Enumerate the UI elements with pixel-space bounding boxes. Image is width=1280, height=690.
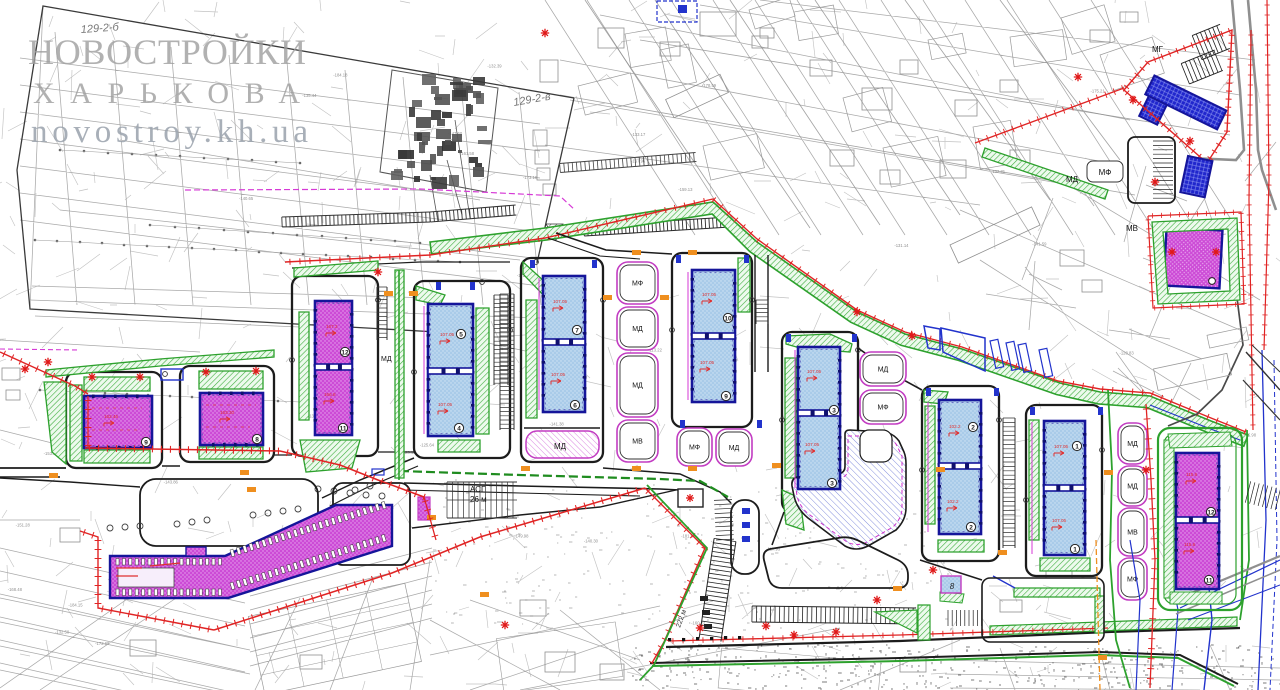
svg-text:162.45: 162.45: [104, 414, 118, 419]
svg-text:4: 4: [457, 425, 461, 432]
svg-text:МФ: МФ: [1099, 168, 1112, 177]
svg-text:-184.18: -184.18: [333, 73, 348, 78]
svg-text:107.05: 107.05: [805, 442, 819, 447]
svg-text:-135.44: -135.44: [302, 93, 317, 98]
svg-text:107.05: 107.05: [807, 369, 821, 374]
svg-text:107.05: 107.05: [702, 292, 716, 297]
svg-text:МД: МД: [729, 445, 740, 452]
svg-text:8: 8: [950, 582, 955, 591]
svg-text:МВ: МВ: [1126, 224, 1138, 233]
svg-text:2: 2: [971, 424, 975, 431]
svg-text:-175.21: -175.21: [1090, 88, 1105, 93]
svg-text:-125.64: -125.64: [420, 442, 435, 447]
svg-text:107.05: 107.05: [440, 332, 454, 337]
svg-text:166.8: 166.8: [324, 392, 336, 397]
svg-text:-132.39: -132.39: [487, 64, 502, 69]
svg-text:МГ: МГ: [1152, 45, 1164, 54]
svg-text:6: 6: [573, 402, 577, 409]
svg-text:107.05: 107.05: [551, 372, 565, 377]
svg-text:-141.38: -141.38: [550, 422, 565, 427]
svg-text:-184.15: -184.15: [68, 603, 83, 608]
svg-text:МВ: МВ: [1127, 530, 1138, 537]
svg-text:-149.98: -149.98: [514, 534, 529, 539]
svg-text:107.05: 107.05: [553, 299, 567, 304]
svg-text:-143.86: -143.86: [164, 479, 179, 484]
svg-text:26 м: 26 м: [470, 495, 487, 504]
svg-text:МД: МД: [632, 383, 643, 390]
svg-text:-132.50: -132.50: [55, 630, 70, 635]
svg-text:-172.69: -172.69: [95, 641, 110, 646]
svg-text:115.6: 115.6: [1186, 472, 1198, 477]
svg-text:7: 7: [575, 327, 579, 334]
svg-text:-159.13: -159.13: [678, 187, 693, 192]
svg-text:НОВОСТРОЙКИ: НОВОСТРОЙКИ: [28, 32, 306, 72]
svg-text:107.05: 107.05: [1052, 518, 1066, 523]
svg-text:11: 11: [1206, 577, 1213, 584]
svg-text:167.2: 167.2: [326, 324, 338, 329]
svg-text:МД: МД: [381, 356, 392, 363]
svg-text:1: 1: [1075, 443, 1079, 450]
svg-text:МФ: МФ: [877, 405, 888, 412]
svg-text:10: 10: [724, 315, 732, 322]
svg-text:102.2: 102.2: [947, 499, 959, 504]
svg-text:2: 2: [969, 524, 973, 531]
svg-text:3: 3: [832, 407, 836, 414]
svg-text:1: 1: [1073, 546, 1077, 553]
svg-text:МД: МД: [1066, 175, 1079, 184]
svg-text:12: 12: [1207, 509, 1215, 516]
svg-text:-133.17: -133.17: [631, 132, 646, 137]
svg-text:-140.30: -140.30: [584, 539, 599, 544]
svg-text:МВ: МВ: [632, 439, 643, 446]
svg-text:МД: МД: [554, 442, 567, 451]
svg-text:-161.58: -161.58: [460, 151, 475, 156]
svg-text:МФ: МФ: [632, 281, 643, 288]
svg-text:107.05: 107.05: [1054, 444, 1068, 449]
svg-text:107.05: 107.05: [438, 402, 452, 407]
svg-text:163.30: 163.30: [220, 410, 234, 415]
svg-text:МД: МД: [632, 326, 643, 333]
svg-text:-128.83: -128.83: [1119, 351, 1134, 356]
svg-text:-131.14: -131.14: [894, 243, 909, 248]
svg-text:novostroy.kh.ua: novostroy.kh.ua: [31, 114, 308, 150]
svg-text:-140.65: -140.65: [239, 196, 254, 201]
svg-text:-151.28: -151.28: [16, 522, 31, 527]
svg-text:МД: МД: [1127, 441, 1138, 448]
svg-text:8: 8: [255, 436, 259, 443]
svg-text:МД: МД: [878, 367, 889, 374]
svg-text:12: 12: [341, 349, 349, 356]
svg-text:115.6: 115.6: [1184, 542, 1196, 547]
svg-text:АСГ: АСГ: [470, 485, 486, 494]
svg-text:9: 9: [144, 439, 148, 446]
svg-text:МФ: МФ: [689, 445, 700, 452]
svg-text:11: 11: [340, 425, 347, 432]
svg-text:102.2: 102.2: [949, 424, 961, 429]
svg-text:107.05: 107.05: [700, 360, 714, 365]
svg-text:-173.18: -173.18: [523, 175, 538, 180]
svg-text:-141.59: -141.59: [1032, 241, 1047, 246]
svg-text:9: 9: [724, 393, 728, 400]
svg-text:МД: МД: [1127, 484, 1138, 491]
svg-text:3: 3: [830, 480, 834, 487]
svg-text:-168.48: -168.48: [8, 587, 23, 592]
svg-text:5: 5: [459, 331, 463, 338]
